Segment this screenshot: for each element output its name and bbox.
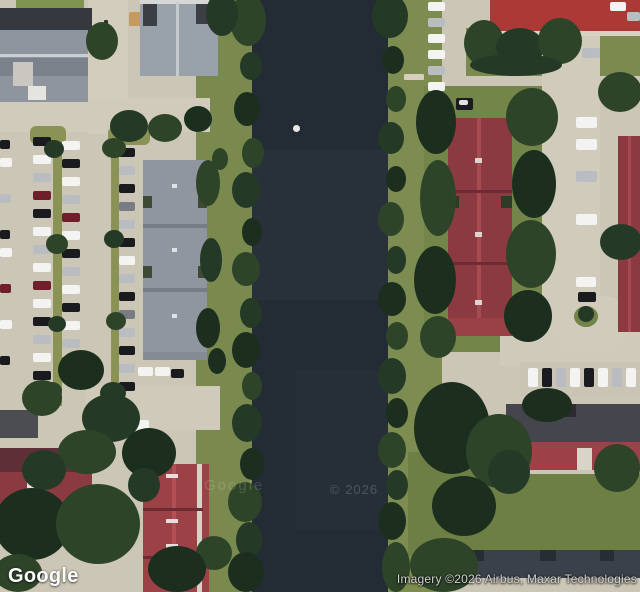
- car: [33, 353, 51, 362]
- tree: [232, 172, 260, 208]
- car: [0, 230, 10, 239]
- bigred-dot-3: [475, 300, 482, 305]
- tree: [232, 252, 260, 286]
- bigred-dot-1: [475, 158, 482, 163]
- car: [0, 284, 11, 293]
- br-chimney: [577, 448, 592, 470]
- tree: [506, 88, 558, 146]
- car: [138, 367, 153, 376]
- bldgC-line-2: [143, 288, 207, 292]
- car: [62, 195, 80, 204]
- bldgC-notch-1: [143, 196, 152, 208]
- tree: [208, 348, 226, 374]
- bigred-line-2: [448, 262, 512, 265]
- bldgA-entry: [28, 86, 46, 100]
- car: [459, 100, 468, 105]
- bldgC-line-1: [143, 224, 207, 228]
- tree: [148, 114, 182, 142]
- car: [612, 368, 622, 387]
- tree: [414, 246, 456, 314]
- tree: [184, 106, 212, 132]
- car: [428, 50, 445, 59]
- tree: [386, 470, 408, 500]
- car: [119, 256, 135, 265]
- car: [0, 194, 11, 203]
- bldgC-dot-3: [172, 314, 177, 318]
- bldgA-ridge: [0, 54, 88, 57]
- bldgB-notch-1: [143, 4, 157, 26]
- tree: [234, 92, 260, 126]
- car: [33, 173, 51, 182]
- car: [62, 213, 80, 222]
- tree: [506, 220, 556, 288]
- bldgC-notch-3: [143, 266, 152, 278]
- tree: [378, 282, 406, 316]
- tree: [58, 350, 104, 390]
- car: [428, 34, 445, 43]
- tree: [378, 432, 406, 468]
- bigred-notch-r: [501, 196, 512, 208]
- car: [556, 368, 566, 387]
- car: [119, 346, 135, 355]
- car: [576, 171, 597, 182]
- tree: [594, 444, 640, 492]
- bldgC-cap: [143, 352, 207, 360]
- tree: [242, 372, 262, 400]
- car: [428, 66, 445, 75]
- water-dot: [293, 125, 300, 132]
- map-stage[interactable]: Google © 2026 Google Imagery ©2026 Airbu…: [0, 0, 640, 592]
- tree: [200, 238, 222, 282]
- car: [33, 335, 51, 344]
- tree: [148, 546, 206, 592]
- car: [33, 263, 51, 272]
- car: [528, 368, 538, 387]
- tree: [386, 322, 408, 350]
- tree: [386, 166, 406, 192]
- tree: [432, 476, 496, 536]
- culdesac: [552, 296, 628, 358]
- tree: [48, 316, 66, 332]
- tree: [106, 312, 126, 330]
- tree: [44, 140, 64, 158]
- car: [627, 12, 640, 21]
- blv-mark-2: [166, 519, 178, 523]
- tree: [420, 316, 456, 358]
- car: [62, 303, 80, 312]
- bldgC-dot-1: [172, 184, 177, 188]
- tree: [232, 332, 260, 368]
- car: [576, 214, 597, 225]
- car: [119, 220, 135, 229]
- car: [598, 368, 608, 387]
- car: [62, 285, 80, 294]
- tree: [46, 234, 68, 254]
- car: [0, 248, 12, 257]
- water-sheen: [252, 150, 388, 300]
- car: [62, 177, 80, 186]
- tree: [196, 308, 220, 348]
- car: [33, 371, 51, 380]
- car: [62, 141, 80, 150]
- car: [119, 184, 135, 193]
- car: [0, 320, 12, 329]
- bigred-line-1: [448, 190, 512, 193]
- tree: [386, 398, 408, 428]
- tree: [240, 448, 264, 480]
- car: [626, 368, 636, 387]
- car: [0, 140, 10, 149]
- bldgB-ridge: [176, 2, 179, 76]
- car: [119, 274, 135, 283]
- tree: [600, 224, 640, 260]
- car: [428, 2, 445, 11]
- car: [33, 209, 51, 218]
- car: [0, 356, 10, 365]
- car: [576, 139, 597, 150]
- tree: [386, 246, 406, 274]
- car: [155, 367, 170, 376]
- car: [428, 18, 445, 27]
- tree: [232, 404, 262, 442]
- car: [610, 2, 626, 11]
- tree: [488, 450, 530, 494]
- car: [576, 277, 596, 287]
- tree: [378, 502, 406, 540]
- tree: [378, 122, 404, 154]
- tree: [470, 54, 562, 76]
- car: [33, 227, 51, 236]
- tree: [240, 52, 262, 80]
- tree: [58, 430, 116, 474]
- tree: [598, 72, 640, 112]
- tree: [382, 46, 404, 74]
- water-sheen-2: [296, 370, 388, 530]
- bldgC-dot-2: [172, 248, 177, 252]
- tree: [56, 484, 140, 564]
- car: [570, 368, 580, 387]
- tree: [240, 298, 262, 328]
- car: [584, 368, 594, 387]
- tree: [378, 202, 404, 236]
- tree: [228, 482, 262, 522]
- car: [119, 364, 135, 373]
- car: [33, 281, 51, 290]
- car: [119, 328, 135, 337]
- blv-mark-1: [166, 474, 178, 478]
- tree: [128, 468, 160, 502]
- tree: [420, 160, 456, 236]
- bigred-dot-2: [475, 232, 482, 237]
- dock: [404, 74, 424, 80]
- car: [171, 369, 184, 378]
- car: [62, 159, 80, 168]
- tree: [102, 138, 126, 158]
- car: [576, 117, 597, 128]
- car: [542, 368, 552, 387]
- tree: [228, 552, 264, 592]
- car: [119, 292, 135, 301]
- tree: [104, 230, 124, 248]
- tree: [578, 306, 594, 322]
- bdb-notch-3: [600, 550, 614, 561]
- tree: [522, 388, 572, 422]
- google-logo[interactable]: Google: [8, 565, 79, 588]
- tree: [242, 218, 262, 246]
- tree: [378, 358, 406, 394]
- car: [582, 48, 600, 58]
- median-2: [111, 140, 119, 414]
- car: [578, 292, 596, 302]
- tree: [242, 138, 264, 168]
- tree: [386, 86, 406, 112]
- tree: [416, 90, 456, 154]
- tree: [196, 160, 220, 206]
- car: [62, 339, 80, 348]
- car: [33, 191, 51, 200]
- bldgA-court: [13, 62, 33, 86]
- car: [119, 166, 135, 175]
- bigred-end: [448, 318, 512, 336]
- bdb-notch-2: [540, 550, 556, 561]
- tree: [86, 22, 118, 60]
- tree: [512, 150, 556, 218]
- imagery-attribution: Imagery ©2026 Airbus, Maxar Technologies: [397, 572, 637, 586]
- blv-line-1: [143, 508, 203, 511]
- tree: [504, 290, 552, 342]
- tree: [22, 450, 66, 490]
- car: [119, 202, 135, 211]
- tree: [22, 380, 62, 416]
- car: [62, 267, 80, 276]
- car: [0, 158, 12, 167]
- car: [33, 299, 51, 308]
